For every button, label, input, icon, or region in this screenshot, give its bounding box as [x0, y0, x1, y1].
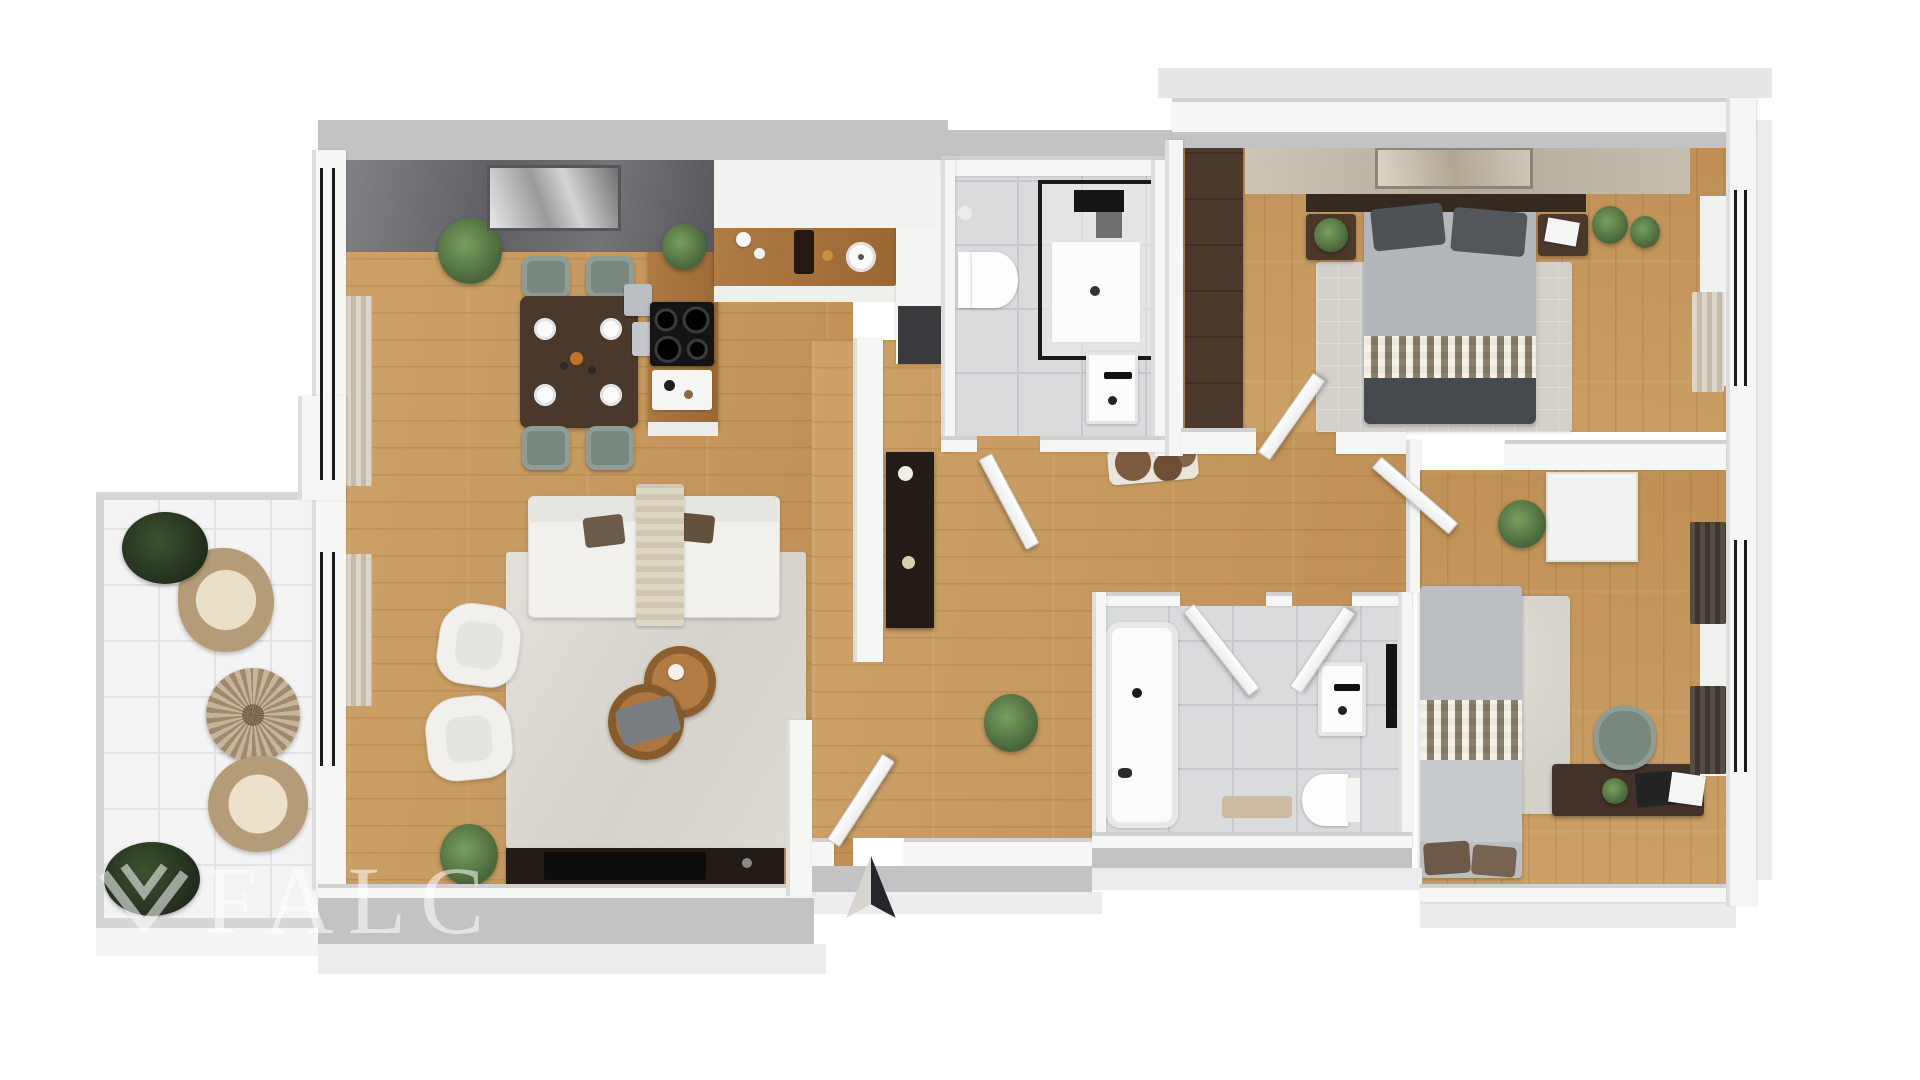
window-frame-icon — [332, 168, 335, 480]
wall-bedroom2-west — [1406, 440, 1420, 592]
tv-icon — [544, 852, 706, 880]
window-frame-icon — [320, 168, 323, 480]
sink-drain-icon — [858, 254, 864, 260]
wall-bath2-east — [1398, 592, 1412, 848]
shower-control-icon — [1096, 212, 1122, 238]
tub-drain-icon — [1118, 768, 1132, 778]
plate-icon — [600, 384, 622, 406]
balcony-plant-icon — [122, 512, 208, 584]
papers-icon — [1668, 772, 1706, 806]
plate-icon — [534, 318, 556, 340]
wardrobe-white — [1546, 472, 1638, 562]
wall-right — [1726, 98, 1756, 906]
pillow-icon — [1370, 202, 1446, 251]
serving-tray — [652, 370, 712, 410]
glass-icon — [822, 250, 833, 261]
wall-top-living — [318, 120, 948, 160]
vase-icon — [902, 556, 915, 569]
sofa-cushion-icon — [582, 514, 625, 549]
tub-faucet-icon — [1132, 688, 1142, 698]
curtain — [346, 296, 372, 486]
vase-icon — [898, 466, 913, 481]
living-wall-art — [490, 168, 618, 228]
north-arrow-icon — [838, 854, 904, 926]
toilet-tank — [1346, 778, 1360, 822]
dining-chair-icon — [522, 256, 570, 298]
sink-drain-icon — [1108, 396, 1117, 405]
wall-living-hall — [853, 338, 883, 662]
bedroom1-plant-icon — [1592, 206, 1628, 244]
window-frame-icon — [320, 552, 323, 766]
slab-bedroom2 — [1420, 902, 1736, 928]
candle-icon — [560, 362, 568, 370]
watermark-brand: FALC — [204, 858, 498, 944]
pillow-icon — [1450, 207, 1528, 257]
nightstand-plant-icon — [1314, 218, 1348, 252]
kitchen-back-wall — [714, 152, 941, 228]
bar-stool-icon — [624, 284, 652, 316]
curtain — [1692, 292, 1724, 392]
dining-chair-icon — [522, 426, 570, 470]
bedroom1-plant-icon — [1630, 216, 1660, 248]
washbasin — [1318, 662, 1366, 736]
wall-top-bath1 — [941, 156, 1181, 176]
wall-bedroom1-south — [1181, 428, 1256, 454]
wall-bedroom1-west — [1165, 140, 1183, 456]
oven-icon — [898, 306, 942, 364]
toilet-icon — [1302, 774, 1348, 826]
washbasin — [1086, 352, 1138, 424]
window-frame-icon — [1744, 540, 1747, 772]
dark-duvet — [1364, 378, 1536, 424]
shower-head-icon — [1074, 190, 1124, 212]
bedroom2-plant-icon — [1498, 500, 1546, 548]
bathtub — [1106, 622, 1178, 828]
duvet — [1420, 760, 1522, 842]
office-chair — [1594, 706, 1656, 770]
faucet-icon — [1104, 372, 1132, 379]
checkered-throw — [1420, 700, 1522, 760]
wicker-table-icon — [206, 668, 300, 762]
dark-curtain — [1690, 522, 1726, 624]
wall-bedroom1-south — [1336, 428, 1406, 454]
armchair-seat — [453, 619, 505, 671]
mug-icon — [736, 232, 751, 247]
wall-entry-south — [904, 838, 1092, 866]
armchair-seat — [444, 714, 495, 765]
watermark: FALC — [98, 858, 498, 947]
desk-plant-icon — [1602, 778, 1628, 804]
faucet-icon — [1334, 684, 1360, 691]
hall-plant-icon — [984, 694, 1038, 752]
curtain — [346, 554, 372, 706]
toilet-icon — [972, 252, 1018, 308]
slab-right — [1756, 120, 1772, 880]
wall-bath2-face — [1092, 848, 1412, 868]
floor-plan-canvas: FALC — [0, 0, 1920, 1080]
dining-chair-icon — [586, 426, 634, 470]
candle-icon — [588, 366, 596, 374]
bottle-rack-icon — [794, 230, 814, 274]
kitchen-plant-icon — [662, 224, 706, 270]
checkered-throw — [1364, 336, 1536, 380]
wall-bath2-north — [1266, 592, 1292, 606]
wall-bath2-south — [1092, 832, 1412, 848]
toilet-paper-icon — [958, 206, 972, 220]
bath-mat — [1222, 796, 1292, 818]
cooktop-icon — [650, 302, 714, 366]
window-frame-icon — [332, 552, 335, 766]
jar-icon — [684, 390, 693, 399]
wardrobe-dark — [1185, 146, 1243, 430]
mirror-icon — [1386, 644, 1397, 728]
mug-icon — [754, 248, 765, 259]
wall-bedroom2-south — [1420, 884, 1726, 902]
wall-bath1-west — [941, 160, 955, 452]
pillow-icon — [1471, 844, 1517, 878]
sink-drain-icon — [1338, 706, 1347, 715]
vase-icon — [668, 664, 684, 680]
slab-top-bedroom1 — [1158, 68, 1772, 98]
wall-bath1-east — [1151, 160, 1165, 456]
wall-left-window — [312, 150, 346, 890]
throw-blanket — [636, 484, 684, 626]
dark-curtain — [1690, 686, 1726, 774]
wall-bedroom2-north — [1505, 440, 1726, 470]
bedroom1-wall-art — [1378, 150, 1530, 186]
wall-bath2-west — [1092, 592, 1106, 848]
window-frame-icon — [1734, 540, 1737, 772]
kitchen-island-front — [648, 422, 718, 436]
pillow-icon — [1423, 840, 1471, 875]
wall-bath1-south — [1040, 436, 1181, 452]
decor-icon — [742, 858, 752, 868]
wall-living-southeast — [786, 720, 812, 896]
wall-top-bedroom1 — [1172, 98, 1756, 132]
window-frame-icon — [1734, 190, 1737, 386]
falc-logo-icon — [98, 858, 190, 947]
window-frame-icon — [1744, 190, 1747, 386]
balcony-railing-top — [96, 492, 328, 500]
plate-icon — [534, 384, 556, 406]
headboard-shelf — [1306, 194, 1586, 212]
wicker-chair-icon — [208, 756, 308, 852]
mug-icon — [664, 380, 675, 391]
kitchen-counter-front — [714, 286, 896, 302]
shower-drain-icon — [1090, 286, 1100, 296]
wall-top-bedroom1-band — [1172, 132, 1756, 148]
bowl-icon — [570, 352, 583, 365]
plate-icon — [600, 318, 622, 340]
slab-bath2 — [1092, 868, 1422, 890]
wall-top-bath1-band — [941, 130, 1181, 156]
wall-bath1-south — [941, 436, 977, 452]
